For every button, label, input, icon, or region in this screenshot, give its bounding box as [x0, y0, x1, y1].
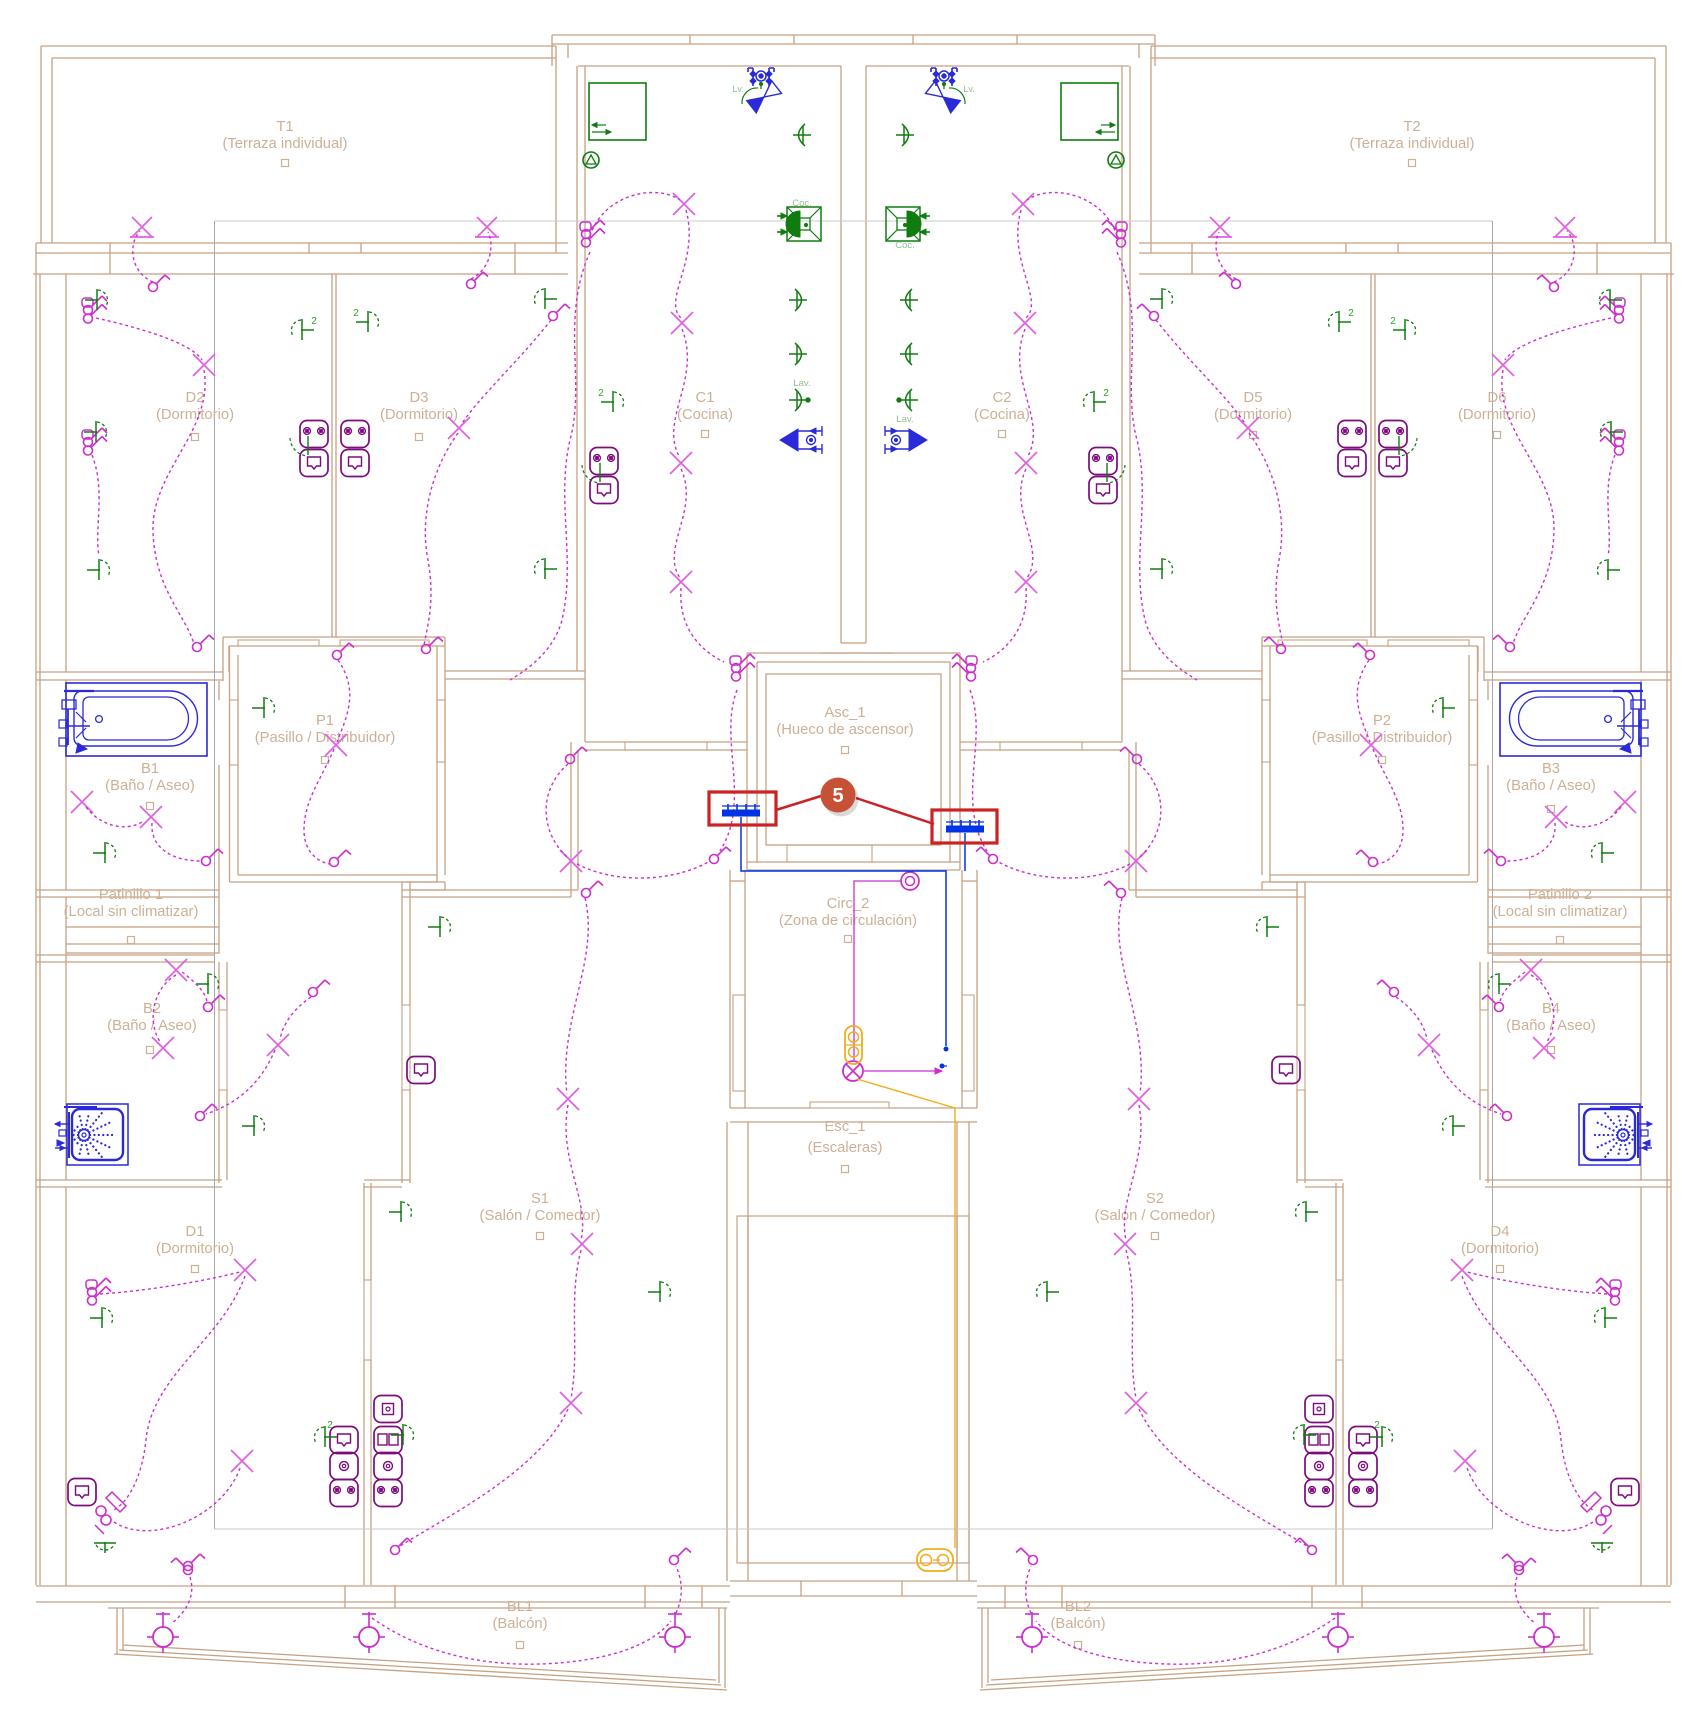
svg-text:(Salón / Comedor): (Salón / Comedor) [480, 1208, 601, 1224]
svg-text:2: 2 [1103, 388, 1109, 399]
svg-text:C1: C1 [696, 390, 715, 406]
svg-text:(Cocina): (Cocina) [677, 407, 733, 423]
svg-text:(Balcón): (Balcón) [492, 1616, 547, 1632]
svg-text:(Dormitorio): (Dormitorio) [380, 407, 458, 423]
svg-text:(Local sin climatizar): (Local sin climatizar) [64, 904, 199, 920]
svg-text:2: 2 [353, 308, 359, 319]
svg-text:D1: D1 [186, 1224, 205, 1240]
svg-text:B1: B1 [141, 761, 159, 777]
svg-text:T2: T2 [1403, 119, 1420, 135]
svg-text:D4: D4 [1491, 1224, 1510, 1240]
svg-text:(Hueco de ascensor): (Hueco de ascensor) [776, 722, 913, 738]
svg-text:(Terraza individual): (Terraza individual) [222, 136, 347, 152]
svg-text:BL2: BL2 [1065, 1599, 1091, 1615]
svg-text:Coc.: Coc. [895, 240, 915, 251]
svg-text:D5: D5 [1244, 390, 1263, 406]
svg-text:2: 2 [311, 316, 317, 327]
svg-text:D2: D2 [186, 390, 205, 406]
svg-text:B4: B4 [1542, 1001, 1560, 1017]
svg-text:(Terraza individual): (Terraza individual) [1349, 136, 1474, 152]
svg-text:P2: P2 [1373, 713, 1391, 729]
svg-text:Patinillo 2: Patinillo 2 [1528, 887, 1592, 903]
svg-text:(Local sin climatizar): (Local sin climatizar) [1493, 904, 1628, 920]
svg-text:T1: T1 [276, 119, 293, 135]
svg-text:2: 2 [327, 1420, 333, 1431]
svg-text:BL1: BL1 [507, 1599, 533, 1615]
svg-text:(Dormitorio): (Dormitorio) [156, 1241, 234, 1257]
svg-text:2: 2 [1348, 308, 1354, 319]
svg-text:(Dormitorio): (Dormitorio) [1214, 407, 1292, 423]
svg-text:(Baño / Aseo): (Baño / Aseo) [1506, 778, 1596, 794]
svg-text:(Pasillo / Distribuidor): (Pasillo / Distribuidor) [1312, 730, 1453, 746]
svg-text:(Dormitorio): (Dormitorio) [1458, 407, 1536, 423]
svg-text:C2: C2 [993, 390, 1012, 406]
svg-text:(Baño / Aseo): (Baño / Aseo) [107, 1018, 197, 1034]
svg-text:S1: S1 [531, 1191, 549, 1207]
svg-text:Lav.: Lav. [896, 414, 913, 425]
svg-text:(Balcón): (Balcón) [1050, 1616, 1105, 1632]
svg-text:(Cocina): (Cocina) [974, 407, 1030, 423]
svg-text:(Pasillo / Distribuidor): (Pasillo / Distribuidor) [255, 730, 396, 746]
svg-text:B2: B2 [143, 1001, 161, 1017]
svg-text:P1: P1 [316, 713, 334, 729]
svg-text:S2: S2 [1146, 1191, 1164, 1207]
svg-text:2: 2 [1374, 1420, 1380, 1431]
svg-text:(Escaleras): (Escaleras) [808, 1140, 883, 1156]
svg-text:Circ_2: Circ_2 [827, 896, 870, 912]
svg-text:Lav.: Lav. [793, 378, 810, 389]
svg-text:(Baño / Aseo): (Baño / Aseo) [105, 778, 195, 794]
svg-text:(Salón / Comedor): (Salón / Comedor) [1095, 1208, 1216, 1224]
svg-text:Patinillo 1: Patinillo 1 [99, 887, 163, 903]
svg-text:Lv.: Lv. [732, 84, 743, 94]
svg-text:(Dormitorio): (Dormitorio) [156, 407, 234, 423]
svg-text:2: 2 [1390, 316, 1396, 327]
svg-text:2: 2 [598, 388, 604, 399]
svg-text:Esc_1: Esc_1 [824, 1119, 865, 1135]
svg-text:D3: D3 [410, 390, 429, 406]
svg-text:Lv.: Lv. [963, 84, 974, 94]
svg-text:(Dormitorio): (Dormitorio) [1461, 1241, 1539, 1257]
svg-text:Asc_1: Asc_1 [824, 705, 865, 721]
svg-text:(Zona de circulación): (Zona de circulación) [779, 913, 917, 929]
svg-text:(Baño / Aseo): (Baño / Aseo) [1506, 1018, 1596, 1034]
svg-text:B3: B3 [1542, 761, 1560, 777]
svg-text:D6: D6 [1488, 390, 1507, 406]
svg-text:Coc.: Coc. [792, 198, 812, 209]
svg-text:5: 5 [832, 785, 843, 807]
